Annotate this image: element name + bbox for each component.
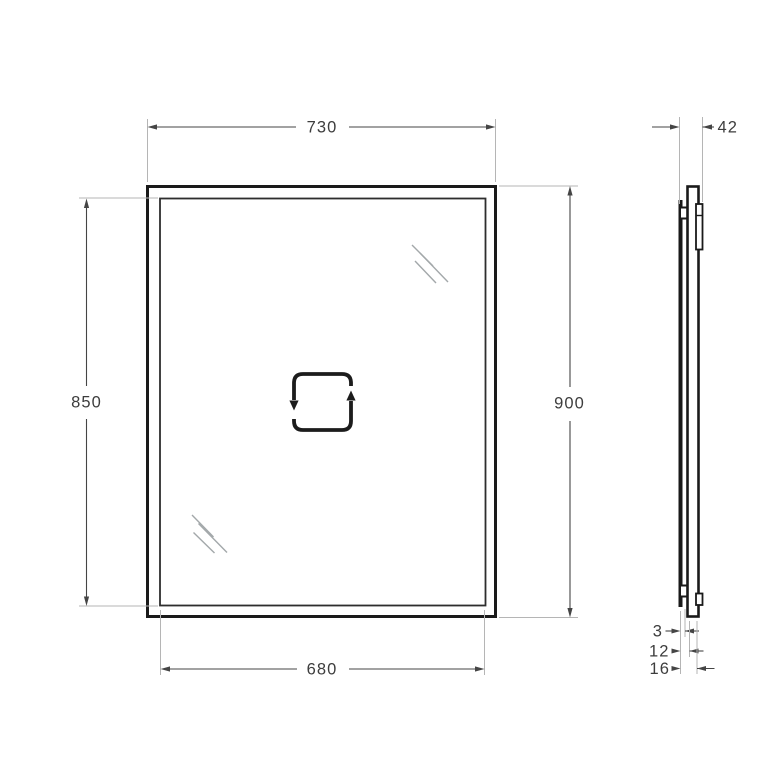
dimension-label-3: 3 (653, 623, 663, 641)
arrowhead-right (672, 649, 681, 654)
arrowhead-left (697, 666, 706, 671)
technical-drawing: 730 680 850 900 (0, 0, 768, 768)
drawing-sheet: 730 680 850 900 (0, 0, 768, 768)
mirror-panel-profile (688, 187, 699, 617)
dimension-label-680: 680 (307, 661, 338, 679)
arrowhead-right (672, 666, 681, 671)
wall-bracket-bottom (696, 594, 703, 606)
arrowhead-left (148, 124, 158, 129)
arrowhead-up (567, 186, 572, 196)
arrowhead-down (567, 608, 572, 618)
arrowhead-right (486, 124, 496, 129)
dimension-label-42: 42 (718, 119, 739, 137)
arrowhead-right (475, 666, 485, 671)
arrowhead-right (672, 629, 681, 634)
dimension-label-900: 900 (554, 395, 585, 413)
arrowhead-up (84, 199, 89, 209)
arrowhead-right (670, 124, 680, 129)
dimension-label-16: 16 (649, 660, 670, 678)
dimension-label-730: 730 (307, 119, 338, 137)
side-view (679, 187, 703, 617)
front-view (148, 187, 496, 617)
dimension-900: 900 (499, 186, 585, 618)
arrowhead-down (84, 597, 89, 607)
dimension-730: 730 (148, 119, 496, 183)
back-panel-profile (679, 200, 683, 607)
mirror-outer-frame (148, 187, 496, 617)
dimension-850: 850 (71, 198, 158, 606)
dimension-label-12: 12 (649, 643, 670, 661)
dimension-680: 680 (161, 610, 485, 679)
arrowhead-left (703, 124, 713, 129)
arrowhead-left (161, 666, 171, 671)
dimension-label-850: 850 (71, 394, 102, 412)
wall-bracket-top (696, 204, 703, 250)
